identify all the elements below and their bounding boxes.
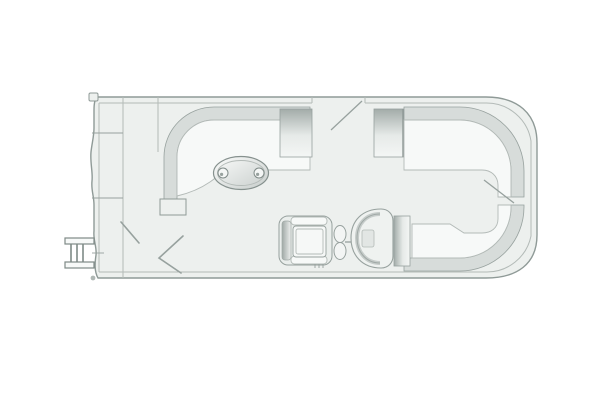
chair-armrest-top xyxy=(291,217,327,225)
chair-backrest xyxy=(282,221,291,260)
wheel-lobe-bottom xyxy=(334,243,346,260)
captain-chair xyxy=(279,216,332,265)
lounge-seatback-block xyxy=(374,109,404,157)
cup-holder xyxy=(254,168,264,178)
lounge-arm-end-step xyxy=(160,199,186,215)
cup-holder-dot xyxy=(256,173,259,176)
ladder-rail-bottom xyxy=(65,262,94,268)
chair-seat xyxy=(293,226,326,257)
cocktail-table xyxy=(214,157,269,190)
pontoon-floorplan-screenshot xyxy=(0,0,600,414)
ladder-rail-top xyxy=(65,238,94,244)
transom-dot xyxy=(91,276,96,281)
console-dash-panel xyxy=(362,230,374,247)
pontoon-floorplan-drawing xyxy=(0,0,600,414)
cup-holder xyxy=(218,168,228,178)
stern-corner-fitting xyxy=(89,93,98,101)
lounge-seatback-block xyxy=(394,216,410,266)
cup-holder-dot xyxy=(220,173,223,176)
lounge-seatback-block xyxy=(280,109,312,157)
boarding-ladder xyxy=(65,238,94,268)
wheel-lobe-top xyxy=(334,226,346,243)
